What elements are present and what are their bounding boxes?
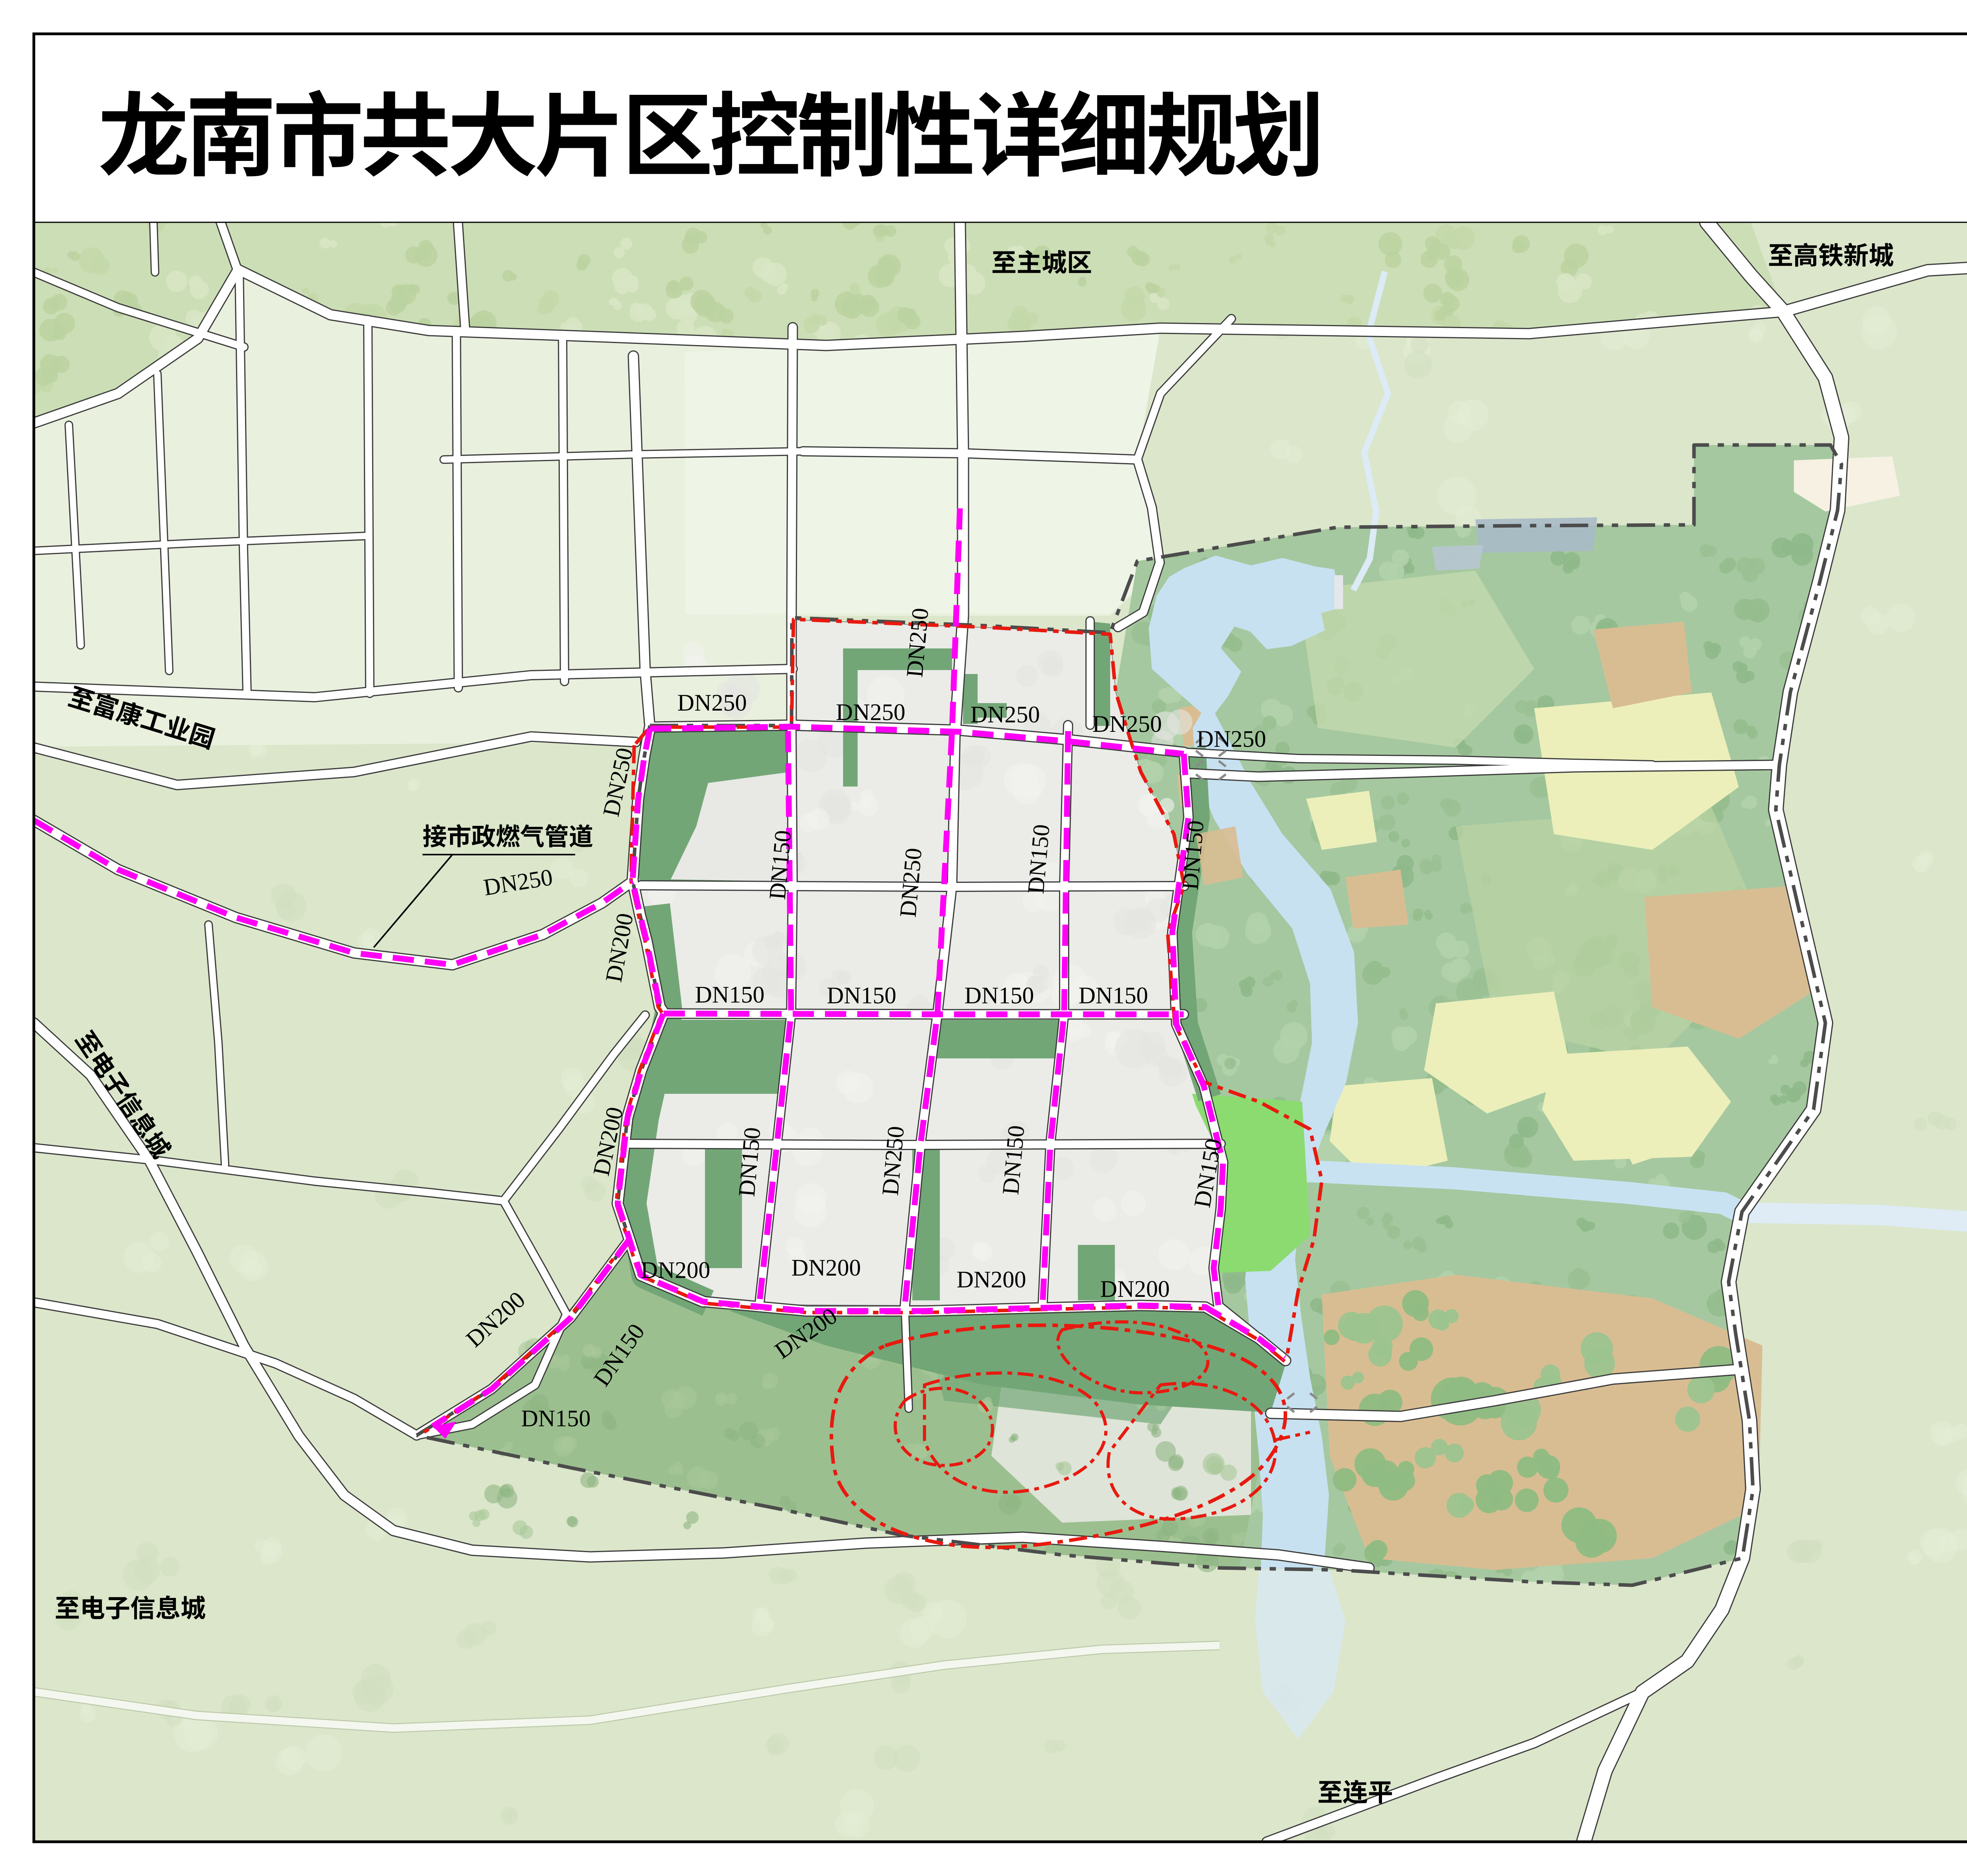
svg-text:DN150: DN150 bbox=[827, 982, 897, 1008]
svg-text:DN150: DN150 bbox=[521, 1405, 591, 1431]
svg-text:DN250: DN250 bbox=[1197, 726, 1266, 752]
svg-text:DN250: DN250 bbox=[971, 702, 1040, 728]
svg-text:DN200: DN200 bbox=[641, 1257, 710, 1283]
svg-text:DN200: DN200 bbox=[1100, 1276, 1170, 1302]
svg-text:DN250: DN250 bbox=[1092, 711, 1162, 737]
svg-text:DN250: DN250 bbox=[677, 690, 747, 716]
svg-text:DN200: DN200 bbox=[792, 1255, 861, 1281]
svg-text:DN150: DN150 bbox=[1079, 982, 1148, 1008]
svg-text:DN150: DN150 bbox=[695, 982, 765, 1008]
svg-text:DN150: DN150 bbox=[965, 982, 1034, 1008]
svg-text:DN250: DN250 bbox=[836, 699, 906, 725]
svg-text:DN200: DN200 bbox=[957, 1267, 1026, 1293]
